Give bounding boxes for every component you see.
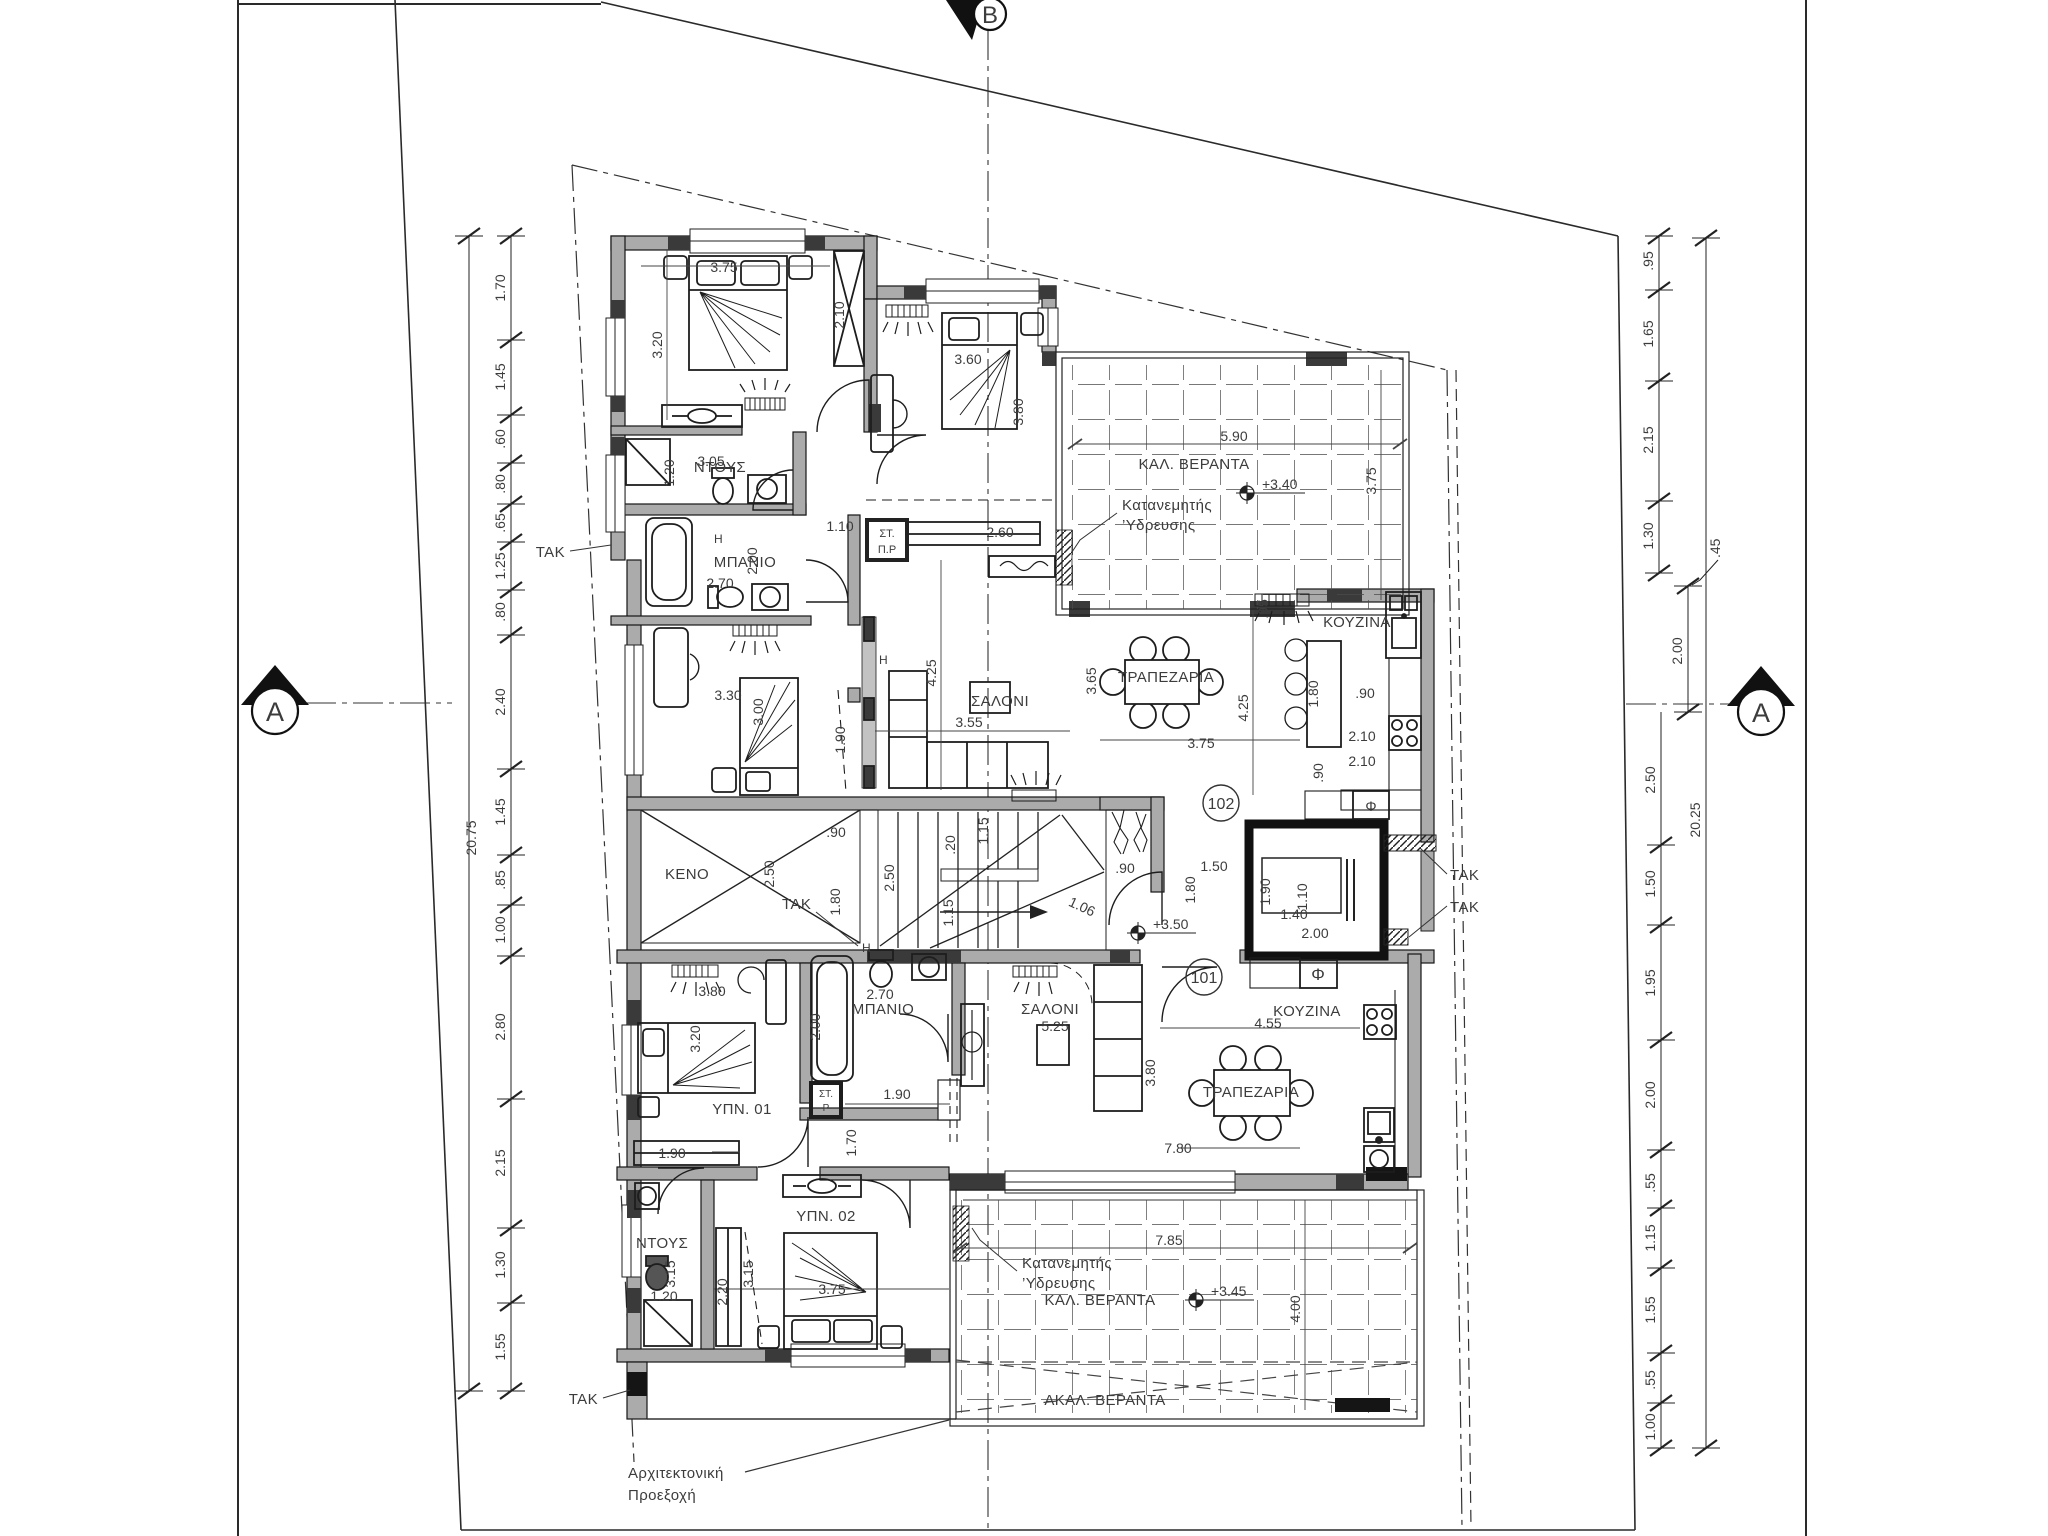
svg-text:3.75: 3.75 [1363,467,1379,494]
svg-text:Κατανεμητής: Κατανεμητής [1122,497,1212,514]
svg-text:101: 101 [1191,970,1218,987]
svg-text:ΣΑΛΟΝΙ: ΣΑΛΟΝΙ [971,693,1029,710]
svg-text:1.90: 1.90 [883,1086,910,1102]
svg-text:ΚΟΥΖΙΝΑ: ΚΟΥΖΙΝΑ [1323,614,1391,631]
svg-text:2.15: 2.15 [492,1149,508,1176]
svg-text:3.15: 3.15 [662,1260,678,1287]
svg-text:1.50: 1.50 [1200,858,1227,874]
svg-text:1.20: 1.20 [650,1288,677,1304]
svg-text:+3.40: +3.40 [1262,476,1298,492]
svg-text:20.25: 20.25 [1687,802,1703,837]
svg-text:.20: .20 [942,835,958,855]
svg-text:1.90: 1.90 [832,726,848,753]
svg-text:.80: .80 [492,474,508,494]
svg-text:2.15: 2.15 [1640,426,1656,453]
svg-text:Αρχιτεκτονική: Αρχιτεκτονική [628,1465,724,1482]
svg-text:2.80: 2.80 [492,1013,508,1040]
svg-text:ΤΑΚ: ΤΑΚ [1450,867,1479,884]
svg-text:3.00: 3.00 [750,698,766,725]
svg-text:1.70: 1.70 [492,274,508,301]
svg-text:3.05: 3.05 [697,453,724,469]
svg-text:ΤΡΑΠΕΖΑΡΙΑ: ΤΡΑΠΕΖΑΡΙΑ [1118,669,1214,686]
svg-text:B: B [982,2,998,29]
svg-text:.90: .90 [826,824,846,840]
svg-text:.85: .85 [492,870,508,890]
svg-text:2.00: 2.00 [807,1013,823,1040]
svg-text:ΣΤ.: ΣΤ. [819,1089,833,1100]
svg-text:1.45: 1.45 [492,363,508,390]
svg-text:5.90: 5.90 [1220,428,1247,444]
svg-text:.55: .55 [1642,1370,1658,1390]
svg-text:3.30: 3.30 [714,687,741,703]
svg-text:1.15: 1.15 [975,817,991,844]
svg-text:1.50: 1.50 [1642,870,1658,897]
svg-text:2.50: 2.50 [761,860,777,887]
svg-text:+3.45: +3.45 [1211,1283,1247,1299]
svg-text:.65: .65 [492,513,508,533]
svg-text:1.95: 1.95 [1642,969,1658,996]
svg-text:3.80: 3.80 [698,983,725,999]
svg-text:1.40: 1.40 [1280,906,1307,922]
svg-text:ΤΑΚ: ΤΑΚ [782,896,811,913]
svg-text:2.10: 2.10 [831,301,847,328]
svg-text:1.55: 1.55 [492,1333,508,1360]
svg-text:ΑΚΑΛ. ΒΕΡΑΝΤΑ: ΑΚΑΛ. ΒΕΡΑΝΤΑ [1044,1392,1165,1409]
svg-text:ΚΑΛ. ΒΕΡΑΝΤΑ: ΚΑΛ. ΒΕΡΑΝΤΑ [1045,1292,1156,1309]
svg-text:2.70: 2.70 [866,986,893,1002]
svg-text:Φ: Φ [1365,798,1376,814]
svg-text:1.55: 1.55 [1642,1296,1658,1323]
svg-text:Φ: Φ [1311,965,1325,984]
svg-text:H: H [879,653,888,667]
svg-text:ΚΟΥΖΙΝΑ: ΚΟΥΖΙΝΑ [1273,1003,1341,1020]
svg-text:.90: .90 [1115,860,1135,876]
svg-text:2.00: 2.00 [1669,637,1685,664]
svg-text:2.20: 2.20 [714,1278,730,1305]
svg-text:3.55: 3.55 [955,714,982,730]
svg-text:ΜΠΑΝΙΟ: ΜΠΑΝΙΟ [852,1001,914,1018]
svg-text:1.25: 1.25 [492,552,508,579]
svg-text:2.00: 2.00 [1301,925,1328,941]
svg-text:1.20: 1.20 [661,459,677,486]
svg-text:3.75: 3.75 [818,1281,845,1297]
svg-text:2.50: 2.50 [1642,766,1658,793]
svg-text:ΣΤ.: ΣΤ. [879,528,894,540]
svg-text:.90: .90 [1310,763,1326,783]
svg-text:3.80: 3.80 [1142,1059,1158,1086]
svg-text:3.65: 3.65 [1083,667,1099,694]
svg-text:1.90: 1.90 [1257,878,1273,905]
svg-text:Ρ: Ρ [823,1103,830,1114]
svg-text:’Υδρευσης: ’Υδρευσης [1122,517,1196,534]
svg-text:2.50: 2.50 [881,864,897,891]
svg-text:ΚΑΛ. ΒΕΡΑΝΤΑ: ΚΑΛ. ΒΕΡΑΝΤΑ [1139,456,1250,473]
svg-text:’Υδρευσης: ’Υδρευσης [1022,1275,1096,1292]
svg-text:5.25: 5.25 [1041,1018,1068,1034]
svg-text:3.60: 3.60 [954,351,981,367]
svg-text:Π.Ρ: Π.Ρ [878,544,896,556]
svg-text:3.80: 3.80 [1010,398,1026,425]
svg-text:.90: .90 [1355,685,1375,701]
svg-text:1.00: 1.00 [1642,1413,1658,1440]
svg-text:1.80: 1.80 [1182,876,1198,903]
svg-text:1.15: 1.15 [1642,1224,1658,1251]
svg-text:.95: .95 [1640,251,1656,271]
svg-text:ΤΑΚ: ΤΑΚ [536,544,565,561]
svg-text:ΚΕΝΟ: ΚΕΝΟ [665,866,709,883]
svg-text:ΥΠΝ. 02: ΥΠΝ. 02 [796,1208,856,1225]
svg-text:1.90: 1.90 [658,1145,685,1161]
svg-text:A: A [266,697,284,727]
svg-text:2.10: 2.10 [1348,728,1375,744]
svg-text:H: H [862,941,871,955]
svg-text:2.60: 2.60 [986,524,1013,540]
svg-text:1.45: 1.45 [492,798,508,825]
svg-text:ΤΡΑΠΕΖΑΡΙΑ: ΤΡΑΠΕΖΑΡΙΑ [1203,1084,1299,1101]
svg-text:3.20: 3.20 [687,1025,703,1052]
svg-text:ΝΤΟΥΣ: ΝΤΟΥΣ [636,1235,688,1252]
svg-text:102: 102 [1208,796,1235,813]
svg-text:4.00: 4.00 [1287,1295,1303,1322]
svg-text:1.80: 1.80 [1305,680,1321,707]
svg-text:1.30: 1.30 [492,1251,508,1278]
svg-text:1.10: 1.10 [826,518,853,534]
svg-text:.55: .55 [1642,1173,1658,1193]
svg-text:4.25: 4.25 [1235,694,1251,721]
svg-text:Κατανεμητής: Κατανεμητής [1022,1255,1112,1272]
svg-text:H: H [714,532,723,546]
svg-text:2.40: 2.40 [492,688,508,715]
svg-text:Προεξοχή: Προεξοχή [628,1487,696,1504]
svg-text:A: A [1752,698,1770,728]
svg-text:1.70: 1.70 [843,1129,859,1156]
svg-text:.60: .60 [492,429,508,449]
svg-text:4.25: 4.25 [923,659,939,686]
svg-text:ΥΠΝ. 01: ΥΠΝ. 01 [712,1101,772,1118]
svg-text:3.75: 3.75 [1187,735,1214,751]
svg-text:2.00: 2.00 [744,547,760,574]
svg-text:3.15: 3.15 [740,1260,756,1287]
svg-text:3.20: 3.20 [649,331,665,358]
svg-text:3.75: 3.75 [710,259,737,275]
svg-text:1.80: 1.80 [827,888,843,915]
svg-text:.80: .80 [492,602,508,622]
svg-text:1.65: 1.65 [1640,320,1656,347]
svg-text:2.10: 2.10 [1348,753,1375,769]
svg-text:ΣΑΛΟΝΙ: ΣΑΛΟΝΙ [1021,1001,1079,1018]
svg-text:.45: .45 [1707,538,1723,558]
svg-text:2.70: 2.70 [706,575,733,591]
svg-text:1.30: 1.30 [1640,522,1656,549]
svg-text:.95: .95 [1255,599,1271,619]
svg-text:7.85: 7.85 [1155,1232,1182,1248]
svg-text:2.00: 2.00 [1642,1081,1658,1108]
svg-text:ΤΑΚ: ΤΑΚ [1450,899,1479,916]
svg-text:4.55: 4.55 [1254,1015,1281,1031]
svg-text:1.00: 1.00 [492,916,508,943]
svg-text:ΤΑΚ: ΤΑΚ [569,1391,598,1408]
svg-text:+3.50: +3.50 [1153,916,1189,932]
svg-text:1.15: 1.15 [940,899,956,926]
svg-text:20.75: 20.75 [463,820,479,855]
